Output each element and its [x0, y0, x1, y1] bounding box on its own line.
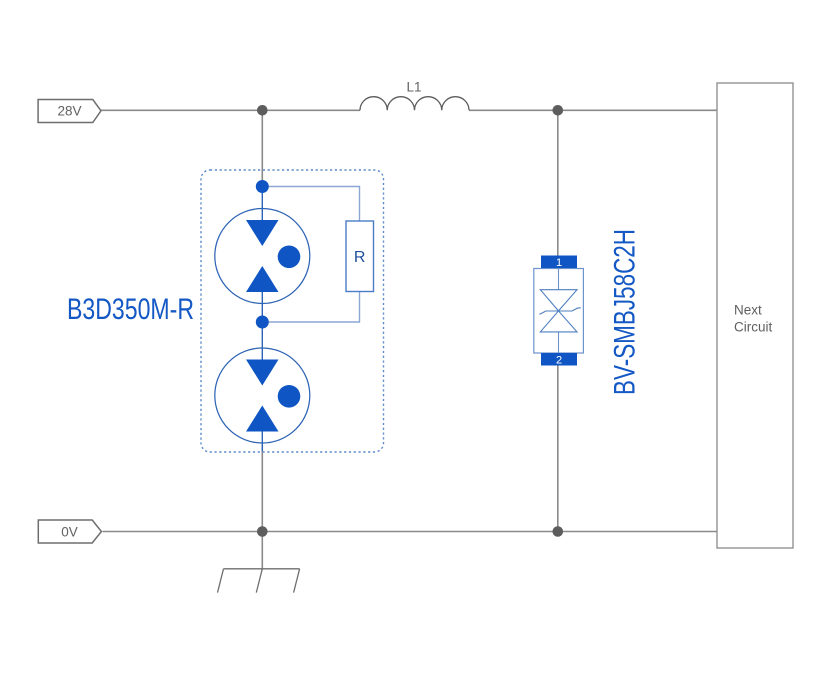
svg-text:Next: Next: [734, 303, 762, 318]
svg-text:2: 2: [556, 354, 562, 366]
svg-text:28V: 28V: [57, 104, 81, 119]
svg-text:L1: L1: [406, 80, 421, 95]
svg-text:1: 1: [556, 257, 562, 269]
svg-text:0V: 0V: [61, 525, 78, 540]
svg-text:Circuit: Circuit: [734, 320, 773, 335]
svg-text:BV-SMBJ58C2H: BV-SMBJ58C2H: [609, 229, 642, 395]
svg-text:B3D350M-R: B3D350M-R: [67, 293, 194, 326]
svg-text:R: R: [354, 249, 366, 266]
